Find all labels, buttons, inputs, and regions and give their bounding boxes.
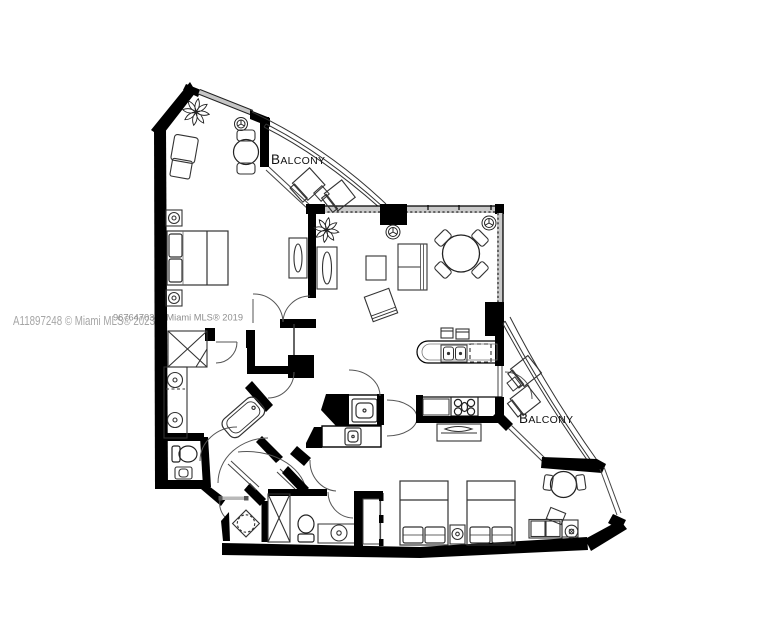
svg-text:BALCONY: BALCONY <box>519 411 573 426</box>
svg-text:BALCONY: BALCONY <box>271 152 325 167</box>
svg-text:96764703 © Miami MLS® 2019: 96764703 © Miami MLS® 2019 <box>113 313 243 324</box>
